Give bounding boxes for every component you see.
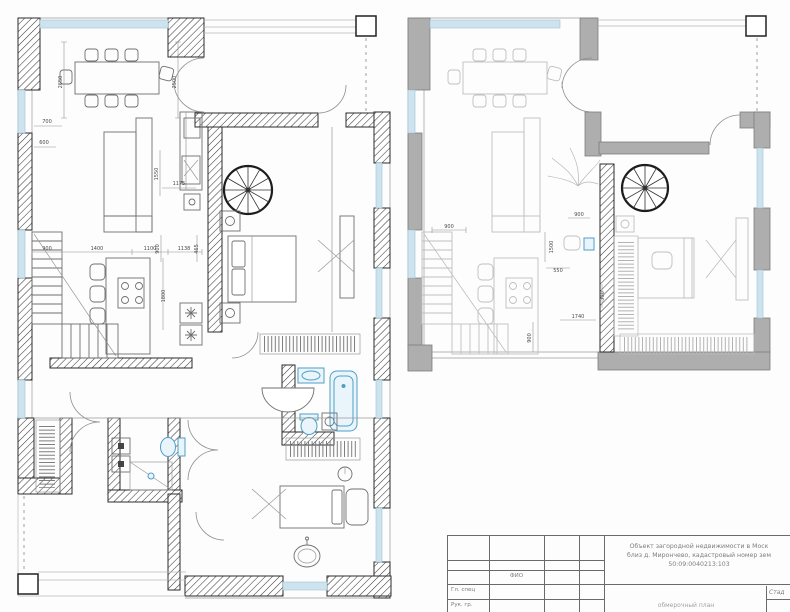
wardrobe-hangers xyxy=(614,216,638,336)
dimension-label: 2500 xyxy=(172,76,178,89)
column xyxy=(746,16,766,36)
tv-unit xyxy=(736,218,748,300)
kitchen-island xyxy=(136,297,143,304)
staircase xyxy=(71,324,107,358)
dimension-label: 1800 xyxy=(161,290,167,303)
sofa xyxy=(136,118,152,232)
bathroom-2 xyxy=(302,371,320,380)
floor-plan-left: 700 600 2650 2500 1550 1175 900 1400 110… xyxy=(18,16,391,598)
dimension-lines xyxy=(432,218,602,352)
sofa xyxy=(492,132,524,216)
kitchen-island xyxy=(122,283,129,290)
kitchen-island xyxy=(524,283,531,290)
spiral-staircase xyxy=(246,188,251,193)
doors xyxy=(34,58,374,540)
exterior-walls xyxy=(195,113,318,127)
sofa xyxy=(104,132,136,216)
exterior-walls-gray xyxy=(754,208,770,270)
staircase xyxy=(461,324,497,354)
toilet-tank xyxy=(178,438,185,456)
exterior-walls xyxy=(18,18,40,90)
dimension-label: 900 xyxy=(155,244,161,254)
exterior-walls xyxy=(327,576,391,596)
dining-table xyxy=(463,62,547,94)
exterior-walls xyxy=(18,278,32,380)
terrace-top xyxy=(598,20,746,26)
windows xyxy=(757,148,763,208)
snowflake-icon xyxy=(185,307,197,319)
staircase xyxy=(422,241,452,313)
dining-table xyxy=(105,49,118,61)
chair xyxy=(564,236,580,250)
bathroom-1 xyxy=(148,473,154,479)
dimension-label: 2650 xyxy=(58,76,64,89)
doors xyxy=(318,85,346,113)
dimension-label: 1740 xyxy=(572,314,585,320)
fio-header: ФИО xyxy=(489,573,544,580)
wardrobe-hangers xyxy=(260,334,360,354)
dining-table xyxy=(85,49,98,61)
exterior-walls xyxy=(168,18,204,57)
titleblock-divider xyxy=(544,536,545,612)
single-bed xyxy=(280,486,344,528)
bar-chair xyxy=(90,264,105,280)
spiral-staircase xyxy=(643,186,648,191)
bar-chair xyxy=(478,264,493,280)
wardrobe-hangers xyxy=(621,220,629,228)
tv-unit xyxy=(318,127,354,332)
dining-table xyxy=(448,70,460,84)
closet-hangers-bottom xyxy=(620,334,754,354)
exterior-walls-gray xyxy=(580,18,598,60)
windows xyxy=(376,268,382,318)
windows xyxy=(283,582,327,590)
kitchen-island xyxy=(122,297,129,304)
dining-table xyxy=(125,49,138,61)
titleblock-divider xyxy=(579,536,580,612)
dining-table xyxy=(493,49,506,61)
dining-table xyxy=(473,95,486,107)
bathroom-2 xyxy=(262,368,357,435)
dining-table xyxy=(546,66,562,82)
spiral-staircase xyxy=(224,166,272,214)
exterior-walls-gray xyxy=(408,278,422,348)
windows xyxy=(408,230,415,278)
staircase xyxy=(452,324,508,354)
exterior-walls xyxy=(168,494,180,590)
dimension-labels: 700 600 2650 2500 1550 1175 900 1400 110… xyxy=(39,76,200,303)
project-description: Объект загородной недвижимости в Моск бл… xyxy=(606,542,790,569)
windows xyxy=(430,20,560,28)
doors xyxy=(188,420,218,480)
porch-bottom xyxy=(18,494,186,596)
exterior-walls-gray xyxy=(408,345,432,371)
spiral-staircase xyxy=(622,165,668,211)
exterior-walls-gray xyxy=(754,112,770,148)
exterior-walls xyxy=(18,418,34,478)
porch-bottom xyxy=(18,494,186,596)
exterior-walls-gray xyxy=(598,352,770,370)
project-line-1: Объект загородной недвижимости в Моск xyxy=(606,542,790,551)
dining-table xyxy=(513,95,526,107)
toilet xyxy=(301,418,317,435)
exterior-walls xyxy=(374,318,390,380)
dimension-label: 900 xyxy=(42,246,52,252)
dimension-label: 465 xyxy=(194,244,200,254)
outer-boundary xyxy=(408,18,598,371)
floor-plan-right: 900 900 1500 550 300 1740 900 xyxy=(408,16,770,371)
tv-unit xyxy=(706,240,736,278)
nightstand xyxy=(220,211,240,231)
dining-table xyxy=(513,49,526,61)
exterior-walls-gray xyxy=(754,318,770,354)
dimension-label: 900 xyxy=(444,224,454,230)
scanned-drawing-page: 700 600 2650 2500 1550 1175 900 1400 110… xyxy=(0,0,790,612)
bar-chair xyxy=(478,308,493,324)
tv-unit xyxy=(340,216,354,298)
dining-table xyxy=(85,95,98,107)
nightstand xyxy=(226,217,235,226)
nightstand xyxy=(226,309,235,318)
snowflake-icon xyxy=(185,329,197,341)
role-row-group-leader: Рук. гр. xyxy=(451,602,473,609)
sofa xyxy=(492,118,540,232)
tv-unit xyxy=(318,240,354,272)
dimension-label: 700 xyxy=(42,119,52,125)
windows xyxy=(376,380,382,418)
dining-table xyxy=(75,62,159,94)
dimension-label: 600 xyxy=(39,140,49,146)
dimension-label: 1550 xyxy=(154,168,160,181)
kitchen-counter xyxy=(184,194,200,210)
architectural-drawing: 700 600 2650 2500 1550 1175 900 1400 110… xyxy=(0,0,790,612)
exterior-walls-gray xyxy=(408,133,422,230)
nightstand xyxy=(220,303,240,323)
windows xyxy=(376,508,382,562)
dimension-label: 300 xyxy=(600,291,606,301)
exterior-walls xyxy=(374,418,390,508)
staircase xyxy=(62,324,118,358)
bathroom-1 xyxy=(118,443,124,449)
exterior-walls-gray xyxy=(585,112,601,156)
cadastral-number: 50:09:0040213:103 xyxy=(606,560,790,569)
dimension-lines xyxy=(432,218,602,352)
doors xyxy=(174,58,204,112)
titleblock-divider xyxy=(448,560,604,561)
dimension-label: 1175 xyxy=(173,181,186,187)
windows xyxy=(40,20,168,28)
bar-chair xyxy=(90,308,105,324)
toilet xyxy=(161,438,176,457)
doors xyxy=(196,512,224,540)
armchair xyxy=(346,489,368,525)
bedroom-single xyxy=(252,486,368,567)
new-partition-wall xyxy=(600,164,614,352)
desk xyxy=(638,238,694,298)
sofa xyxy=(524,118,540,232)
half-round-table xyxy=(262,388,314,412)
terrace-top xyxy=(204,16,376,112)
sofa xyxy=(492,216,540,232)
kitchen-island xyxy=(90,258,150,354)
titleblock-divider xyxy=(448,599,604,600)
doors xyxy=(232,332,258,358)
kitchen-island xyxy=(136,283,143,290)
exterior-walls xyxy=(374,208,390,268)
exterior-walls xyxy=(374,112,390,163)
dimension-label: 900 xyxy=(574,212,584,218)
tv-unit xyxy=(706,218,748,300)
bedroom-single xyxy=(298,549,316,563)
dimension-label: 1500 xyxy=(549,241,555,254)
windows xyxy=(408,90,415,133)
titleblock-divider xyxy=(448,570,604,571)
kitchen-island xyxy=(510,283,517,290)
column xyxy=(18,574,38,594)
doors xyxy=(70,392,100,452)
titleblock-divider xyxy=(766,599,790,600)
dining-table xyxy=(105,95,118,107)
kitchen-island xyxy=(510,297,517,304)
exterior-walls-gray xyxy=(408,18,430,90)
bathroom-1 xyxy=(118,461,124,467)
doors xyxy=(710,115,740,145)
sofa xyxy=(104,216,152,232)
stage-label: Стад xyxy=(769,589,785,596)
exterior-walls xyxy=(346,113,376,127)
column xyxy=(356,16,376,36)
chair xyxy=(652,252,672,269)
windows xyxy=(18,90,25,133)
nightstand xyxy=(616,216,634,232)
exterior-walls xyxy=(18,133,32,230)
exterior-walls xyxy=(50,358,192,368)
windows xyxy=(757,270,763,318)
staircase xyxy=(422,232,452,324)
dimension-label: 550 xyxy=(553,268,563,274)
dimension-label: 1400 xyxy=(91,246,104,252)
dining-table xyxy=(60,49,174,107)
bedroom-single xyxy=(306,537,309,540)
drawing-title: обмерочный план xyxy=(606,602,766,609)
exterior-walls xyxy=(185,576,283,596)
dining-table xyxy=(448,49,562,107)
titleblock-divider xyxy=(448,584,790,585)
kitchen-island xyxy=(524,297,531,304)
desk xyxy=(684,238,694,298)
kitchen-island xyxy=(106,258,150,354)
windows xyxy=(376,163,382,208)
exterior-walls-gray xyxy=(599,142,709,154)
titleblock-divider xyxy=(604,536,605,612)
dimension-label: 900 xyxy=(527,333,533,343)
bathroom-2 xyxy=(342,384,346,388)
windows xyxy=(18,380,25,418)
fridge-freezer xyxy=(180,303,202,345)
closet-hangers-bottom xyxy=(620,334,754,354)
role-row-chief-specialist: Гл. спец xyxy=(451,587,475,594)
kitchen-counter xyxy=(189,199,195,205)
sofa xyxy=(104,118,152,232)
terrace-top xyxy=(598,16,766,112)
dining-table xyxy=(493,95,506,107)
terrace-top xyxy=(204,20,356,33)
title-block: ФИО Гл. спец Рук. гр. Объект загородной … xyxy=(447,535,790,612)
dimension-label: 1138 xyxy=(178,246,191,252)
outer-boundary xyxy=(408,18,598,371)
doors xyxy=(562,58,592,112)
windows xyxy=(18,230,25,278)
dining-table xyxy=(473,49,486,61)
exterior-walls-gray xyxy=(408,18,770,371)
bar-chair xyxy=(478,286,493,302)
staircase xyxy=(422,232,508,354)
dining-table xyxy=(125,95,138,107)
project-line-2: близ д. Мирончево, кадастровый номер зем xyxy=(606,551,790,560)
bar-chair xyxy=(90,286,105,302)
double-bed xyxy=(228,236,296,302)
exterior-walls xyxy=(60,418,72,494)
sink xyxy=(584,238,594,250)
